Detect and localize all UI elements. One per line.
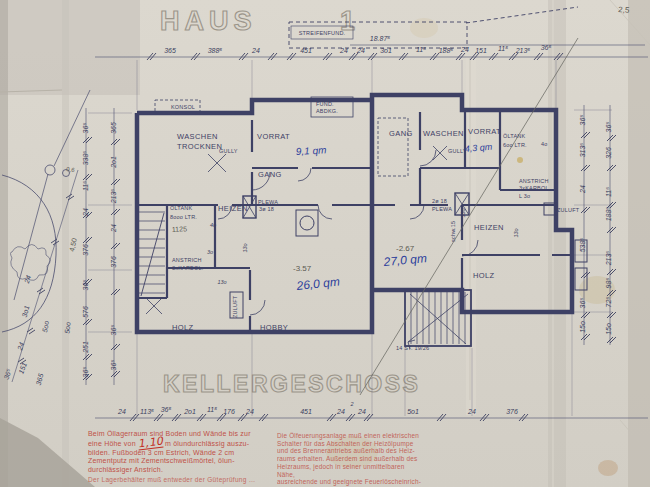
dim-value: 4o — [210, 222, 216, 228]
zuluft-label-left: ZULUFT — [232, 295, 238, 318]
dim-value: 36⁵ — [110, 360, 117, 371]
note-line: Die Ölfeuerungsanlage muß einen elektris… — [277, 432, 422, 440]
dim-value: 5oo — [64, 322, 72, 334]
note-line: Schalter für das Abschalten der Heizölpu… — [277, 440, 422, 448]
title-kellergeschoss: KELLERGESCHOSS — [163, 371, 420, 397]
dim-value: 24 — [467, 408, 476, 415]
dim-value: 11⁵ — [416, 46, 426, 53]
dim-value: 13o — [513, 228, 519, 237]
note-line: durchlässiger Anstrich. — [88, 466, 278, 475]
anstrich-left-line1: ANSTRICH — [172, 257, 202, 263]
plewa-right-line2: PLEWA — [432, 206, 452, 212]
room-label-heizen-left: HEIZEN — [218, 204, 248, 213]
dim-value: 11⁵ — [605, 187, 612, 197]
room-label-hobby: HOBBY — [260, 323, 288, 332]
konsol-label: KONSOL — [171, 104, 195, 110]
oil-storage-note: Beim Öllagerraum sind Boden und Wände bi… — [88, 430, 278, 475]
dim-value: 13o — [242, 243, 248, 252]
dim-value: 176 — [223, 408, 235, 415]
dim-value: 13o — [460, 208, 466, 217]
dim-value: 213⁵ — [515, 47, 531, 54]
dim-value: 213⁵ — [110, 189, 117, 205]
dim-value: 451 — [300, 408, 312, 415]
zuluft-label-right: ZULUFT — [557, 207, 580, 213]
dim-value: 15o — [605, 323, 612, 335]
streifenfundament-label: STREIFENFUND. — [299, 30, 346, 36]
area-note-vorrat-left: 9,1 qm — [296, 144, 327, 157]
dim-value: 3o — [207, 249, 213, 255]
anstrich-left-line2: 3xKARBOL. — [172, 265, 204, 271]
anstrich-right-line1: ANSTRICH — [519, 178, 549, 184]
dim-value: 24 — [339, 47, 348, 54]
dim-value: 36⁵ — [579, 298, 586, 309]
dim-value: 313⁵ — [579, 143, 586, 158]
dim-value: 36⁵ — [541, 44, 552, 51]
dim-value: 72⁵ — [605, 297, 612, 308]
dim-value: 576 — [82, 306, 89, 318]
title-haus: HAUS — [160, 6, 257, 36]
dim-value: 2o1 — [183, 408, 196, 415]
note-line: Zementputz mit Zementschweißmörtel, ölun… — [88, 457, 278, 466]
room-label-holz-left: HOLZ — [172, 323, 194, 332]
room-label-vorrat-left: VORRAT — [257, 132, 290, 141]
floor-plan-svg: HAUS 1 KELLERGESCHOSS — [0, 0, 650, 487]
note-line: raums erhalten. Außerdem sind außerhalb … — [277, 455, 422, 463]
oeltank-left-line1: ÖLTANK — [170, 205, 193, 211]
dim-value: 24 — [460, 46, 469, 53]
dim-value: 326 — [605, 147, 612, 159]
note-line: eine Höhe von1,10m ölundurchlässig auszu… — [88, 439, 278, 449]
dim-value: 36⁵ — [110, 325, 117, 336]
dim-value: 24 — [110, 224, 117, 233]
dim-value: 36⁵ — [82, 280, 89, 291]
dim-value: 36⁵ — [579, 115, 586, 126]
note-line: Beim Öllagerraum sind Boden und Wände bi… — [88, 430, 278, 439]
dim-value: 24 — [356, 47, 365, 54]
dim-value: 24 — [82, 208, 89, 217]
oeltank-left-line2: 8ooo LTR. — [170, 214, 197, 220]
plewa-right-line1: 2ø 18 — [432, 198, 447, 204]
paper-background — [0, 0, 650, 487]
oil-firing-note: Die Ölfeuerungsanlage muß einen elektris… — [277, 432, 422, 487]
room-label-waschen-left: WASCHEN — [177, 132, 218, 141]
tree-height-note: 0,6 — [66, 166, 76, 173]
stairs-note: 14 ST. 19/26 — [396, 345, 429, 351]
room-label-gang-left: GANG — [258, 170, 282, 179]
gully-label-left: GULLY — [219, 148, 238, 154]
dim-value: 15o — [579, 321, 586, 333]
dim-value: 188⁵ — [605, 207, 612, 222]
note-line: Heizraums, jedoch in seiner unmittelbare… — [277, 463, 422, 478]
room-label-gang-right: GANG — [389, 129, 413, 138]
dim-value: 376 — [82, 244, 89, 256]
dim-value: 251 — [82, 341, 89, 354]
plewa-left-line2: 3ø 18 — [259, 206, 274, 212]
dim-value: 538⁵ — [579, 238, 586, 253]
dim-value: 11⁵ — [498, 45, 508, 52]
fund-label-line2: ABDKG. — [316, 108, 338, 114]
pencil-note-tank: 1125 — [172, 225, 188, 233]
dim-value: 13o — [217, 279, 226, 285]
dim-value: 24 — [251, 47, 260, 54]
oeltank-right-line1: ÖLTANK — [503, 133, 526, 139]
dim-value: 2o1 — [110, 156, 117, 169]
dim-value: 376 — [506, 408, 518, 415]
room-label-heizen-right: HEIZEN — [474, 223, 504, 232]
anstrich-right-line3: L 3o — [519, 193, 530, 199]
anstrich-right-line2: 3xKARBOL. — [519, 185, 551, 191]
dim-value: 24 — [245, 408, 254, 415]
dim-value: 388⁵ — [208, 47, 223, 54]
dim-value: 188⁵ — [439, 47, 454, 54]
level-note-left: -3.57 — [293, 264, 312, 273]
dim-value: 365 — [110, 122, 117, 134]
dim-value: 11⁵ — [82, 181, 89, 191]
fund-label-line1: FUND. — [316, 101, 334, 107]
dim-value: 36⁵ — [605, 122, 612, 133]
dim-value: 365 — [164, 47, 176, 54]
dim-value: 36⁵ — [82, 367, 89, 378]
dim-value: 113⁵ — [140, 408, 154, 415]
room-label-vorrat-right: VORRAT — [468, 127, 501, 136]
schwelle-note: schw.15 — [450, 221, 456, 242]
room-label-holz-right: HOLZ — [473, 271, 495, 280]
note-line: bilden. Fußboden 3 cm Estrich, Wände 2 c… — [88, 449, 278, 458]
dim-value: 98⁵ — [605, 278, 612, 289]
dim-value: 11⁵ — [207, 406, 217, 413]
note-line: ausreichende und geeignete Feuerlöschein… — [277, 478, 422, 486]
oeltank-right-line2: 6oo LTR. — [503, 142, 527, 148]
dim-value: 151 — [475, 47, 487, 54]
note-line: und des Brennerantriebs außerhalb des He… — [277, 447, 422, 455]
overall-dimension: 18.87⁵ — [370, 35, 391, 42]
dim-value: 36⁵ — [161, 406, 172, 413]
plewa-left-line1: PLEWA — [258, 199, 278, 205]
dim-value: 338⁵ — [82, 151, 89, 166]
room-label-trocknen: TROCKNEN — [177, 142, 222, 151]
dim-value: 3o1 — [380, 47, 392, 54]
dim-value: 24 — [579, 185, 586, 194]
dim-value: 5o1 — [407, 408, 419, 415]
dim-value: 24 — [357, 408, 366, 415]
room-label-waschen-right: WASCHEN — [423, 129, 464, 138]
pencil-corner-note: 2,5 — [618, 5, 630, 15]
scanned-floor-plan: HAUS 1 KELLERGESCHOSS — [0, 0, 650, 487]
dim-value: 36⁵ — [82, 123, 89, 134]
dim-value: 24 — [336, 408, 345, 415]
dim-value: 24 — [117, 408, 126, 415]
dim-value: 451 — [300, 47, 312, 54]
dim-value: 213⁵ — [605, 251, 612, 267]
gully-label-right: GULLY — [448, 148, 467, 154]
dim-value: 2 — [349, 401, 353, 407]
dim-note-40: 4o — [541, 141, 548, 147]
dim-value: 376 — [110, 256, 117, 268]
